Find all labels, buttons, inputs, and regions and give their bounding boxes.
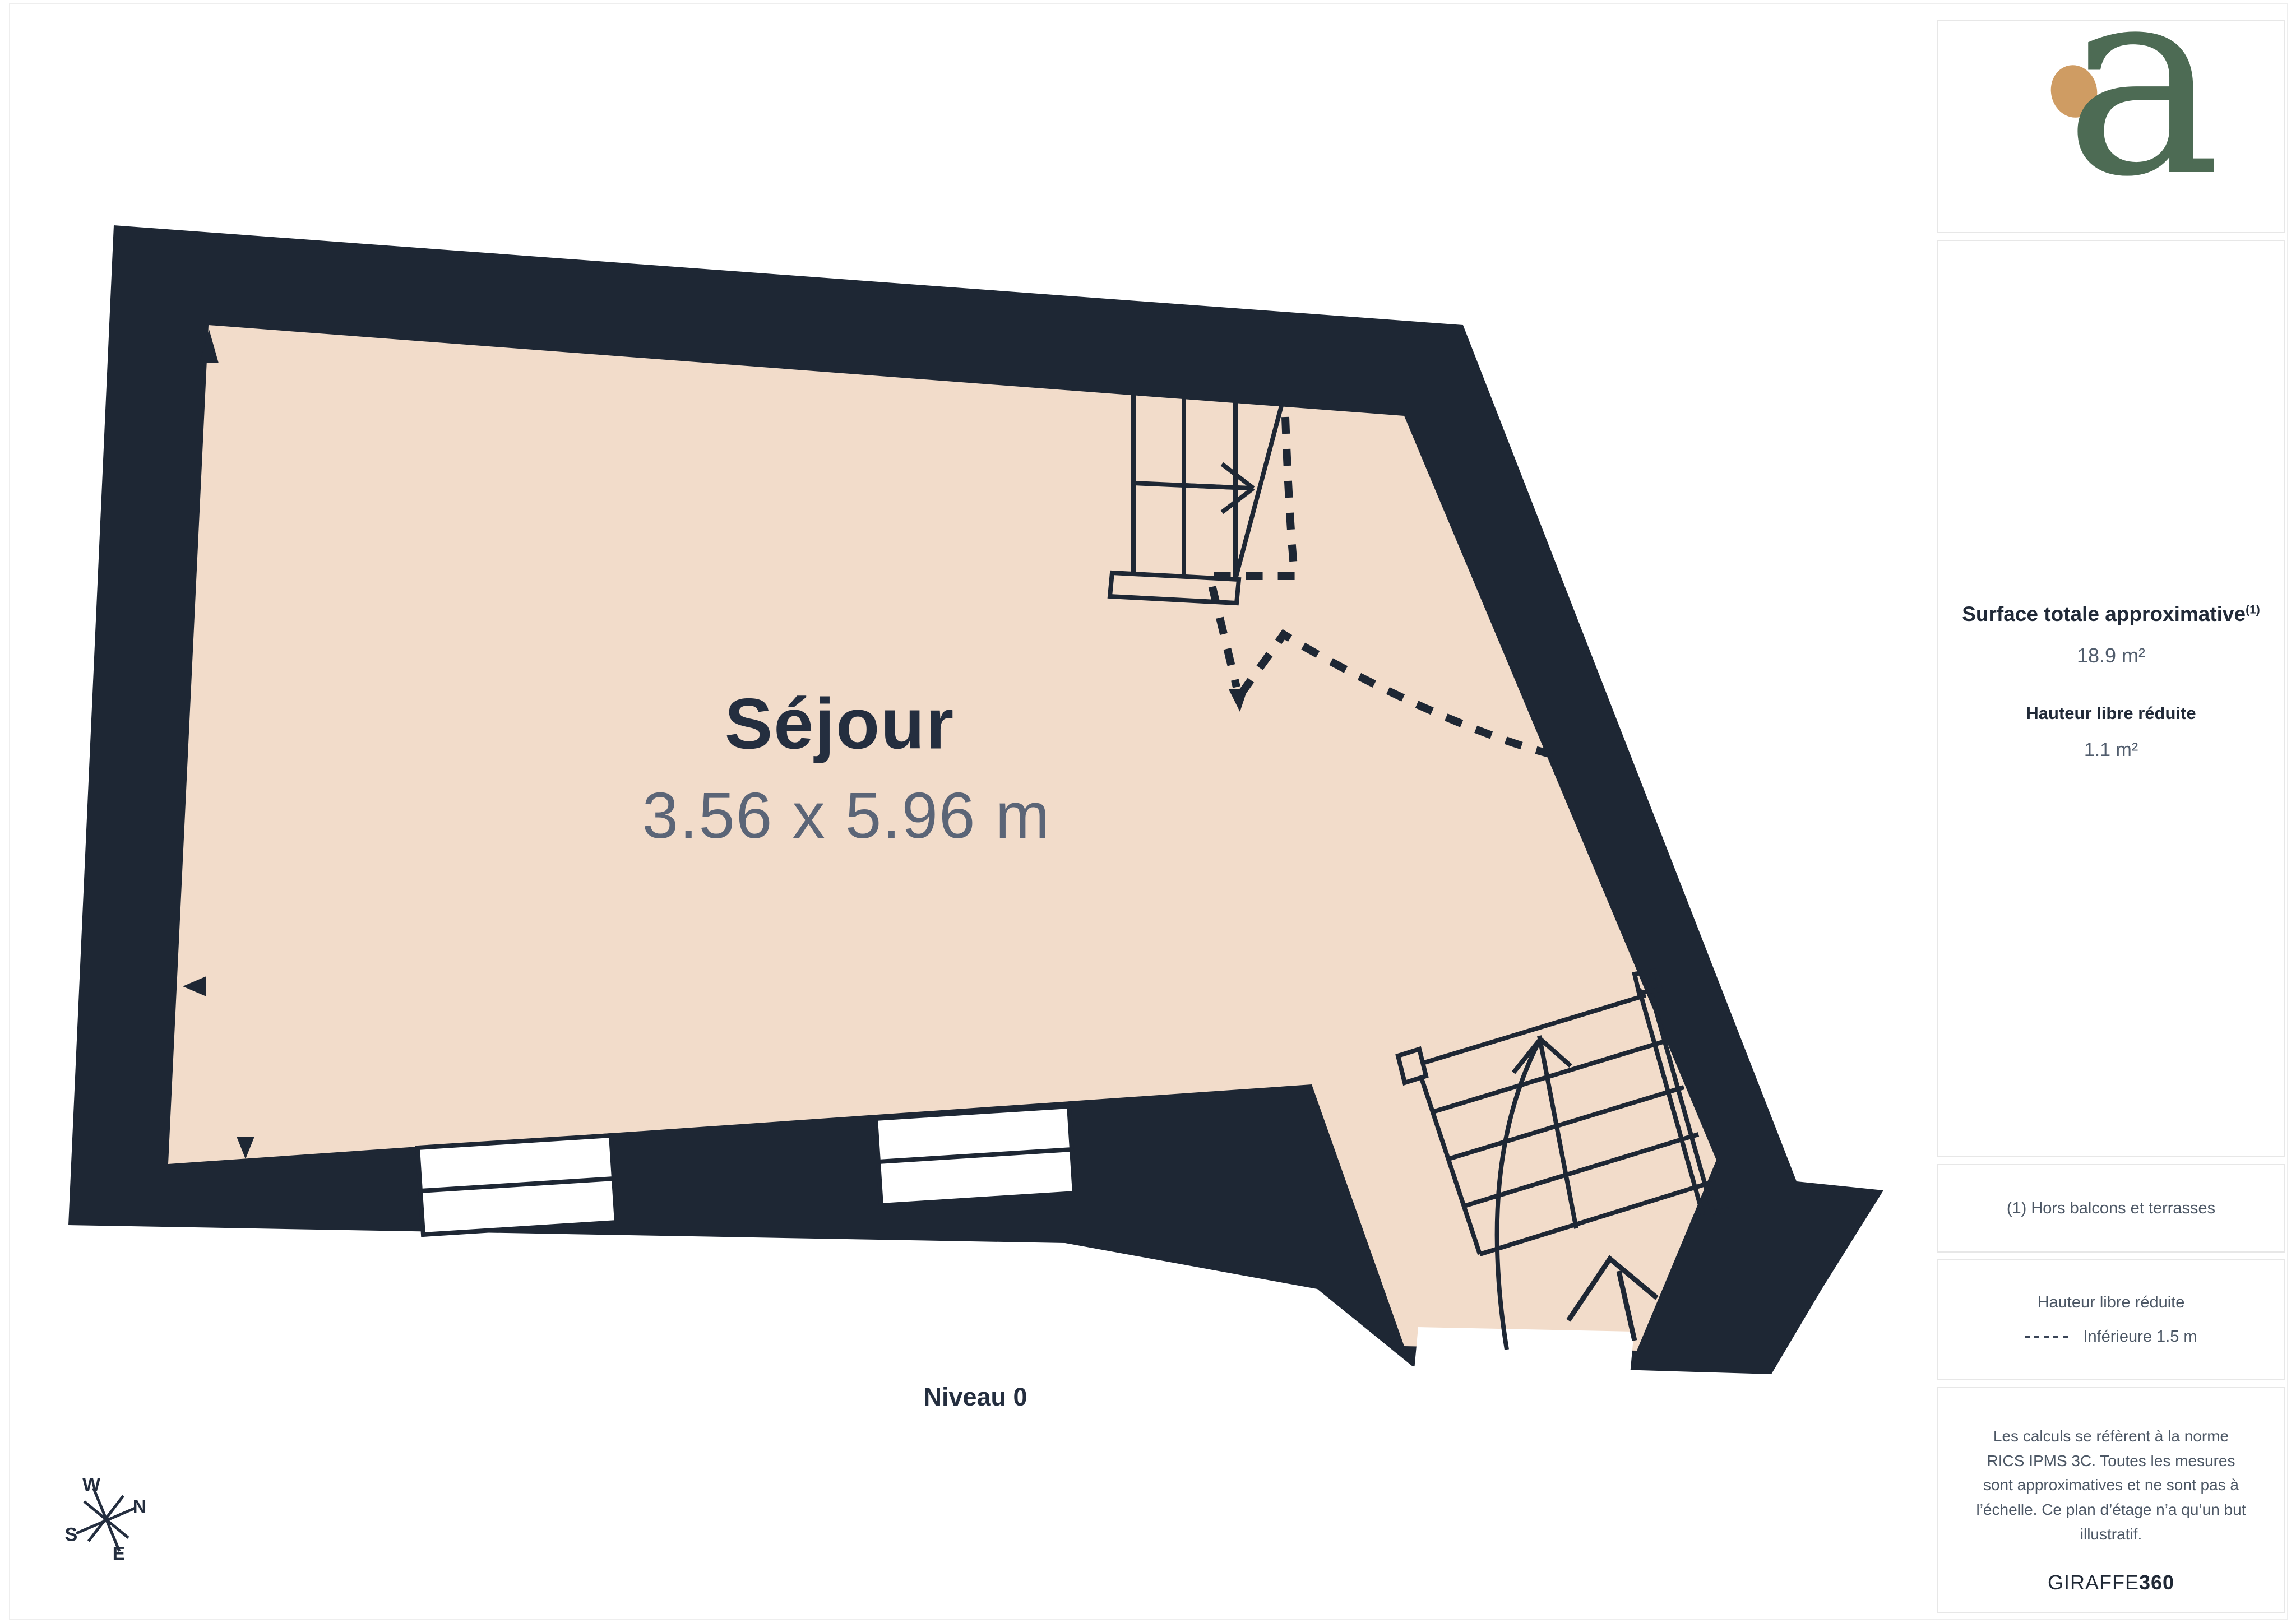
window-icon	[876, 1106, 1075, 1205]
legend-item-label: Inférieure 1.5 m	[2083, 1328, 2197, 1346]
surface-total-title: Surface totale approximative(1)	[1938, 602, 2284, 626]
brand-wordmark: GIRAFFE360	[1938, 1571, 2284, 1594]
room-dimensions-label: 3.56 x 5.96 m	[642, 778, 1051, 853]
brand-logo-letter: a	[2064, 20, 2221, 213]
compass-north-label: N	[133, 1496, 147, 1518]
door-opening	[1414, 1327, 1634, 1374]
brand-suffix: 360	[2139, 1571, 2174, 1594]
brand-name: GIRAFFE	[2048, 1571, 2139, 1594]
reduced-height-value: 1.1 m²	[1938, 739, 2284, 761]
footnote-panel: (1) Hors balcons et terrasses	[1937, 1164, 2285, 1253]
compass-icon	[76, 1488, 135, 1551]
surface-total-footnote-marker: (1)	[2246, 604, 2260, 616]
surface-total-title-text: Surface totale approximative	[1962, 602, 2246, 625]
legend-title: Hauteur libre réduite	[2038, 1293, 2185, 1312]
logo-panel: a	[1937, 20, 2285, 233]
reduced-height-title: Hauteur libre réduite	[1938, 703, 2284, 724]
compass-west-label: W	[82, 1474, 100, 1496]
disclaimer-panel: Les calculs se réfèrent à la norme RICS …	[1937, 1387, 2285, 1613]
footnote-text: (1) Hors balcons et terrasses	[2007, 1199, 2215, 1218]
compass-south-label: S	[65, 1524, 78, 1546]
dashed-line-sample-icon	[2025, 1336, 2068, 1338]
window-icon	[418, 1135, 617, 1235]
legend-panel: Hauteur libre réduite Inférieure 1.5 m	[1937, 1259, 2285, 1380]
room-name-label: Séjour	[725, 683, 955, 766]
surface-total-value: 18.9 m²	[1938, 644, 2284, 667]
surface-stats-panel: Surface totale approximative(1) 18.9 m² …	[1937, 240, 2285, 1157]
compass-east-label: E	[113, 1543, 126, 1565]
level-label: Niveau 0	[923, 1383, 1027, 1412]
disclaimer-text: Les calculs se réfèrent à la norme RICS …	[1975, 1424, 2247, 1546]
